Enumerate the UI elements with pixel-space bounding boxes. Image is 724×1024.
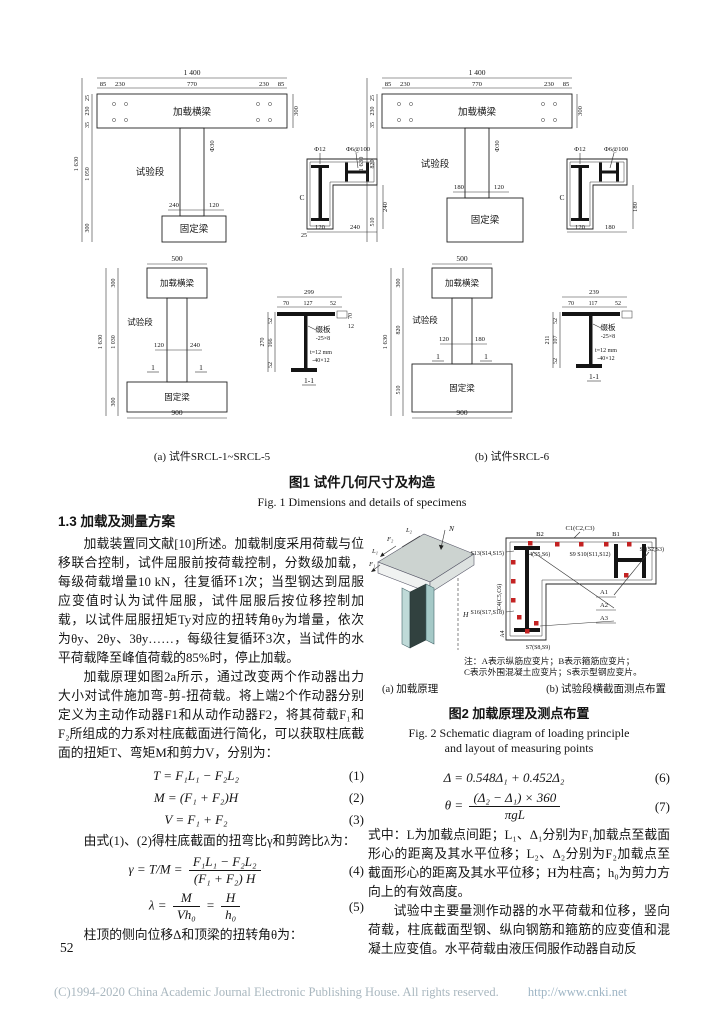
dim-label: 70 bbox=[348, 313, 354, 319]
dim-label: Φ30 bbox=[209, 140, 216, 152]
fraction-denominator: Vh₀ bbox=[173, 907, 200, 923]
equation-5-fraction-1: M Vh₀ bbox=[173, 890, 200, 923]
figure1-elevation-c: 500 加载横梁 1 630 300 1 030 300 试验段 120 240… bbox=[97, 254, 227, 418]
column-label: 试验段 bbox=[412, 315, 438, 325]
figure2-subcaption-b: (b) 试验段横截面测点布置 bbox=[546, 680, 666, 699]
dim-label: 1 630 bbox=[97, 334, 104, 350]
dim-label: 52 bbox=[553, 358, 559, 364]
equation-6-number: (6) bbox=[640, 768, 670, 787]
equation-5: λ = M Vh₀ = H h₀ (5) bbox=[58, 890, 364, 923]
figure2-note: 注：A表示纵筋应变片；B表示箍筋应变片； C表示外围混凝土应变片；S表示型钢应变… bbox=[464, 656, 670, 678]
flange-plate-label: -40×12 bbox=[312, 358, 329, 364]
dim-label: 230 bbox=[85, 107, 91, 116]
dim-label: 12 bbox=[348, 324, 354, 330]
dim-label: 300 bbox=[111, 279, 117, 288]
dim-label: 1 050 bbox=[85, 167, 91, 181]
cnki-url: http://www.cnki.net bbox=[528, 985, 627, 999]
fraction-numerator: F₁L₁ − F₂L₂ bbox=[189, 854, 261, 871]
dim-label: 900 bbox=[456, 408, 468, 417]
steel-gauge-s7-label: S7(S8,S9) bbox=[526, 644, 551, 651]
dim-label: 180 bbox=[454, 184, 465, 191]
equation-2-number: (2) bbox=[334, 788, 364, 807]
dim-label: 127 bbox=[304, 301, 313, 307]
dim-label: 120 bbox=[439, 336, 450, 343]
figure2-caption-en-line2: and layout of measuring points bbox=[368, 741, 670, 756]
right-column: N L₂ F₂ L₁ F₁ H bbox=[368, 522, 670, 959]
base-label: 固定梁 bbox=[180, 223, 209, 235]
figure2-isometric: N L₂ F₂ L₁ F₁ H bbox=[368, 524, 474, 650]
equation-4-number: (4) bbox=[334, 861, 364, 880]
dim-label: 52 bbox=[553, 318, 559, 324]
dim-label: 1 400 bbox=[469, 68, 486, 77]
dim-label: 300 bbox=[111, 398, 117, 407]
beam-label: 加载横梁 bbox=[160, 278, 195, 288]
dim-label: 500 bbox=[456, 254, 468, 263]
plate-label: -25×8 bbox=[601, 334, 615, 340]
base-label: 固定梁 bbox=[471, 214, 500, 226]
dim-label: 52 bbox=[615, 301, 621, 307]
dim-label: 166 bbox=[268, 339, 274, 348]
dim-label: 900 bbox=[171, 408, 183, 417]
section-heading: 1.3 加载及测量方案 bbox=[58, 512, 364, 531]
equation-5-fraction-2: H h₀ bbox=[221, 890, 240, 923]
axial-load-label: N bbox=[448, 524, 455, 533]
beam-label: 加载横梁 bbox=[445, 278, 480, 288]
column-label: 试验段 bbox=[127, 317, 153, 327]
stirrup-gauge-b1-label: B1 bbox=[612, 531, 620, 538]
equation-1-body: T = F₁L₁ − F₂L₂ bbox=[58, 766, 334, 785]
dim-label: 70 bbox=[568, 301, 574, 307]
figure1: 1 400 85 230 770 230 85 加载横梁 300 试验段 Φ30… bbox=[62, 64, 662, 510]
dim-label: 300 bbox=[396, 279, 402, 288]
fraction-numerator: H bbox=[221, 890, 240, 907]
figure1-caption-zh: 图1 试件几何尺寸及构造 bbox=[62, 471, 662, 491]
lever-arm-2-label: L₂ bbox=[405, 527, 413, 534]
dim-label: 25 bbox=[370, 95, 376, 101]
paragraph-2: 加载原理如图2a所示，通过改变两个作动器出力大小对试件施加弯-剪-扭荷载。将上端… bbox=[58, 668, 364, 763]
dim-label: 230 bbox=[370, 107, 376, 116]
dim-label: 300 bbox=[85, 224, 91, 233]
figure1-elevation-d: 500 加载横梁 1 630 300 820 510 试验段 120 180 1… bbox=[382, 254, 512, 418]
beam-label: 加载横梁 bbox=[173, 106, 212, 118]
dim-label: 85 bbox=[563, 81, 570, 88]
paragraph-5: 式中：L为加载点间距；L₁、Δ₁分别为F₁加载点至截面形心的距离及其水平位移；L… bbox=[368, 826, 670, 902]
dim-label: 230 bbox=[115, 81, 126, 88]
dim-label: 820 bbox=[370, 160, 376, 169]
equation-7-lhs: θ = bbox=[445, 797, 463, 812]
equation-2: M = (F₁ + F₂)H (2) bbox=[58, 788, 364, 807]
actuator-1-label: F₁ bbox=[368, 561, 375, 568]
dim-label: 300 bbox=[577, 105, 584, 116]
cut-mark: 1 bbox=[151, 363, 155, 372]
paragraph-1: 加载装置同文献[10]所述。加载制度采用荷载与位移联合控制，试件屈服前按荷载控制… bbox=[58, 535, 364, 668]
batten-label: 缀板 bbox=[316, 324, 331, 334]
rebar-gauge-a2-label: A2 bbox=[600, 602, 608, 609]
figure1-drawing: 1 400 85 230 770 230 85 加载横梁 300 试验段 Φ30… bbox=[62, 64, 662, 444]
dim-label: 239 bbox=[589, 289, 600, 296]
fraction-denominator: πgL bbox=[469, 807, 560, 823]
equation-5-body: λ = M Vh₀ = H h₀ bbox=[58, 890, 334, 923]
figure1-caption-en: Fig. 1 Dimensions and details of specime… bbox=[62, 495, 662, 510]
column-label: 试验段 bbox=[136, 166, 165, 178]
cut-mark: 1-1 bbox=[304, 376, 314, 385]
dim-label: 1 030 bbox=[111, 335, 117, 349]
paragraph-3: 由式(1)、(2)得柱底截面的扭弯比γ和剪跨比λ为： bbox=[58, 832, 364, 851]
base-label: 固定梁 bbox=[164, 392, 190, 402]
dim-label: 85 bbox=[385, 81, 392, 88]
equation-3: V = F₁ + F₂ (3) bbox=[58, 810, 364, 829]
dim-label: 230 bbox=[544, 81, 555, 88]
column-label: 试验段 bbox=[421, 158, 450, 170]
figure1-subcaption-b: (b) 试件SRCL-6 bbox=[362, 448, 662, 464]
dim-label: 120 bbox=[315, 224, 326, 231]
dim-label: 25 bbox=[85, 95, 91, 101]
figure2-caption-en-line1: Fig. 2 Schematic diagram of loading prin… bbox=[368, 726, 670, 741]
equation-5-lhs: λ = bbox=[149, 897, 167, 912]
dim-label: 500 bbox=[171, 254, 183, 263]
dim-label: 117 bbox=[589, 301, 598, 307]
face-label: C bbox=[299, 193, 304, 202]
figure1-elevation-a: 1 400 85 230 770 230 85 加载横梁 300 试验段 Φ30… bbox=[73, 68, 300, 242]
dim-label: 1 400 bbox=[184, 68, 201, 77]
dim-label: 510 bbox=[370, 218, 376, 227]
equation-4-body: γ = T/M = F₁L₁ − F₂L₂ (F₁ + F₂) H bbox=[58, 854, 334, 887]
rebar-gauge-a1-label: A1 bbox=[600, 589, 608, 596]
figure1-section-b: Φ12 Φ6@100 C 120 180 180 bbox=[559, 146, 639, 232]
dim-label: 120 bbox=[209, 202, 220, 209]
equation-5-equals: = bbox=[206, 897, 215, 912]
left-column: 1.3 加载及测量方案 加载装置同文献[10]所述。加载制度采用荷载与位移联合控… bbox=[58, 512, 364, 945]
dim-label: 270 bbox=[260, 338, 266, 347]
figure2-section: C1(C2,C3) B2 B1 S4(S5,S6) S9 S10(S11,S12… bbox=[470, 525, 664, 651]
beam-label: 加载横梁 bbox=[458, 106, 497, 118]
figure2-caption-zh: 图2 加载原理及测点布置 bbox=[368, 704, 670, 723]
actuator-2-label: F₂ bbox=[386, 536, 394, 543]
web-thickness-label: t=12 mm bbox=[310, 350, 332, 356]
dim-label: 300 bbox=[293, 105, 300, 116]
figure1-section-d: 239 70 117 52 211 52 107 52 缀板 -25×8 t=1… bbox=[545, 289, 632, 381]
dim-label: 25 bbox=[301, 233, 307, 239]
figure1-subcaption-a: (a) 试件SRCL-1~SRCL-5 bbox=[62, 448, 362, 464]
cut-mark: 1 bbox=[484, 352, 488, 361]
dim-label: 1 630 bbox=[73, 156, 80, 172]
dim-label: 820 bbox=[396, 326, 402, 335]
dim-label: Φ30 bbox=[494, 140, 501, 152]
dim-label: 35 bbox=[85, 122, 91, 128]
fraction-numerator: (Δ₂ − Δ₁) × 360 bbox=[469, 790, 560, 807]
equation-7: θ = (Δ₂ − Δ₁) × 360 πgL (7) bbox=[368, 790, 670, 823]
cut-mark: 1 bbox=[436, 352, 440, 361]
web-thickness-label: t=12 mm bbox=[595, 348, 617, 354]
figure1-subcaptions: (a) 试件SRCL-1~SRCL-5 (b) 试件SRCL-6 bbox=[62, 448, 662, 464]
fraction-numerator: M bbox=[173, 890, 200, 907]
steel-gauge-s1-label: S1(S2,S3) bbox=[639, 546, 664, 553]
dim-label: 52 bbox=[268, 362, 274, 368]
batten-label: 缀板 bbox=[601, 322, 616, 332]
equation-5-number: (5) bbox=[334, 897, 364, 916]
equation-7-number: (7) bbox=[640, 797, 670, 816]
dim-label: 85 bbox=[278, 81, 285, 88]
equation-4-fraction: F₁L₁ − F₂L₂ (F₁ + F₂) H bbox=[189, 854, 261, 887]
plate-label: -25×8 bbox=[316, 336, 330, 342]
dim-label: 120 bbox=[575, 224, 586, 231]
dim-label: 230 bbox=[400, 81, 411, 88]
copyright-footer: (C)1994-2020 China Academic Journal Elec… bbox=[54, 985, 694, 1000]
dim-label: 120 bbox=[494, 184, 505, 191]
flange-plate-label: -40×12 bbox=[597, 356, 614, 362]
equation-7-fraction: (Δ₂ − Δ₁) × 360 πgL bbox=[469, 790, 560, 823]
equation-4: γ = T/M = F₁L₁ − F₂L₂ (F₁ + F₂) H (4) bbox=[58, 854, 364, 887]
steel-gauge-s4-label: S4(S5,S6) bbox=[526, 551, 551, 558]
figure2-note-line1: 注：A表示纵筋应变片；B表示箍筋应变片； bbox=[464, 656, 670, 667]
rebar-label: Φ12 bbox=[574, 146, 585, 153]
figure2-caption-en: Fig. 2 Schematic diagram of loading prin… bbox=[368, 726, 670, 756]
lever-arm-1-label: L₁ bbox=[371, 548, 378, 555]
dim-label: 180 bbox=[605, 224, 616, 231]
figure1-section-c: 299 70 127 52 70 12 270 52 166 52 缀板 -25… bbox=[260, 289, 354, 385]
rebar-label: Φ12 bbox=[314, 146, 325, 153]
figure2-drawing: N L₂ F₂ L₁ F₁ H bbox=[368, 522, 666, 654]
figure2-subcaption-a: (a) 加载原理 bbox=[382, 680, 438, 699]
dim-label: 1 630 bbox=[358, 156, 365, 172]
dim-label: 85 bbox=[100, 81, 107, 88]
stirrup-gauge-b2-label: B2 bbox=[536, 531, 544, 538]
figure2-note-line2: C表示外围混凝土应变片；S表示型钢应变片。 bbox=[464, 667, 670, 678]
dim-label: 770 bbox=[187, 81, 198, 88]
face-label: C bbox=[559, 193, 564, 202]
equation-1-number: (1) bbox=[334, 766, 364, 785]
dim-label: 35 bbox=[370, 122, 376, 128]
fraction-denominator: (F₁ + F₂) H bbox=[189, 871, 261, 887]
dim-label: 211 bbox=[545, 336, 551, 345]
rebar-gauge-a4-label: A4 bbox=[500, 630, 506, 637]
column-height-label: H bbox=[462, 610, 469, 619]
figure2-subcaptions: (a) 加载原理 (b) 试验段横截面测点布置 bbox=[368, 680, 670, 699]
dim-label: 510 bbox=[396, 386, 402, 395]
equation-1: T = F₁L₁ − F₂L₂ (1) bbox=[58, 766, 364, 785]
paragraph-6: 试验中主要量测作动器的水平荷载和位移，竖向荷载，柱底截面型钢、纵向钢筋和箍筋的应… bbox=[368, 902, 670, 959]
dim-label: 299 bbox=[304, 289, 315, 296]
dim-label: 770 bbox=[472, 81, 483, 88]
page-number: 52 bbox=[60, 940, 74, 956]
steel-gauge-s9-s10-label: S9 S10(S11,S12) bbox=[569, 551, 610, 558]
dim-label: 120 bbox=[154, 342, 165, 349]
equation-4-lhs: γ = T/M = bbox=[128, 861, 182, 876]
equation-6-body: Δ = 0.548Δ₁ + 0.452Δ₂ bbox=[368, 768, 640, 787]
dim-label: 240 bbox=[382, 201, 389, 212]
steel-gauge-s13-label: S13(S14,S15) bbox=[470, 550, 504, 557]
figure1-elevation-b: 1 400 85 230 770 230 85 加载横梁 300 试验段 Φ30… bbox=[358, 68, 584, 242]
equation-6: Δ = 0.548Δ₁ + 0.452Δ₂ (6) bbox=[368, 768, 670, 787]
fraction-denominator: h₀ bbox=[221, 907, 240, 923]
equation-2-body: M = (F₁ + F₂)H bbox=[58, 788, 334, 807]
equation-3-body: V = F₁ + F₂ bbox=[58, 810, 334, 829]
dim-label: 240 bbox=[350, 224, 361, 231]
dim-label: 52 bbox=[330, 301, 336, 307]
concrete-gauge-c1-label: C1(C2,C3) bbox=[565, 525, 594, 532]
copyright-text: (C)1994-2020 China Academic Journal Elec… bbox=[54, 985, 499, 999]
equation-3-number: (3) bbox=[334, 810, 364, 829]
dim-label: 240 bbox=[169, 202, 180, 209]
dim-label: 180 bbox=[475, 336, 486, 343]
concrete-gauge-c4-label: C4(C5,C6) bbox=[496, 584, 503, 611]
dim-label: 70 bbox=[283, 301, 289, 307]
cut-mark: 1 bbox=[199, 363, 203, 372]
rebar-gauge-a3-label: A3 bbox=[600, 615, 609, 622]
paragraph-4: 柱顶的侧向位移Δ和顶梁的扭转角θ为： bbox=[58, 926, 364, 945]
base-label: 固定梁 bbox=[449, 383, 475, 393]
cut-mark: 1-1 bbox=[589, 372, 599, 381]
equation-7-body: θ = (Δ₂ − Δ₁) × 360 πgL bbox=[368, 790, 640, 823]
stirrup-label: Φ6@100 bbox=[604, 146, 629, 153]
dim-label: 1 630 bbox=[382, 334, 389, 350]
dim-label: 230 bbox=[259, 81, 270, 88]
dim-label: 240 bbox=[190, 342, 201, 349]
dim-label: 107 bbox=[553, 336, 559, 345]
dim-label: 180 bbox=[632, 201, 639, 212]
steel-gauge-s16-label: S16(S17,S18) bbox=[470, 609, 504, 616]
dim-label: 52 bbox=[268, 318, 274, 324]
